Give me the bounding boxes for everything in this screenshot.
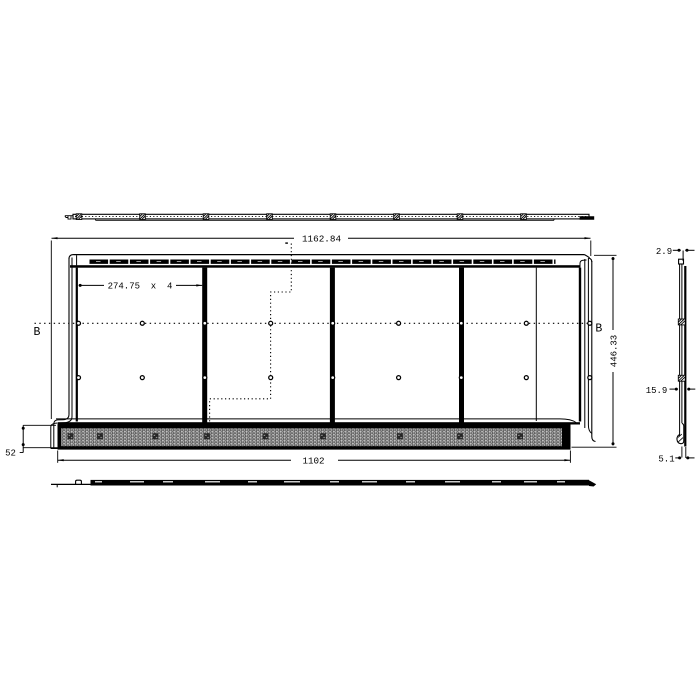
svg-text:446.33: 446.33 (609, 335, 619, 367)
svg-text:1162.84: 1162.84 (302, 234, 341, 245)
svg-text:2.9: 2.9 (656, 247, 672, 257)
svg-text:274.75 x 4: 274.75 x 4 (108, 282, 173, 292)
svg-text:B: B (595, 323, 602, 336)
svg-text:52: 52 (5, 448, 16, 458)
svg-text:15.9: 15.9 (646, 386, 668, 396)
svg-text:B: B (34, 326, 41, 339)
svg-text:5.1: 5.1 (658, 454, 674, 464)
svg-text:1102: 1102 (302, 456, 324, 467)
